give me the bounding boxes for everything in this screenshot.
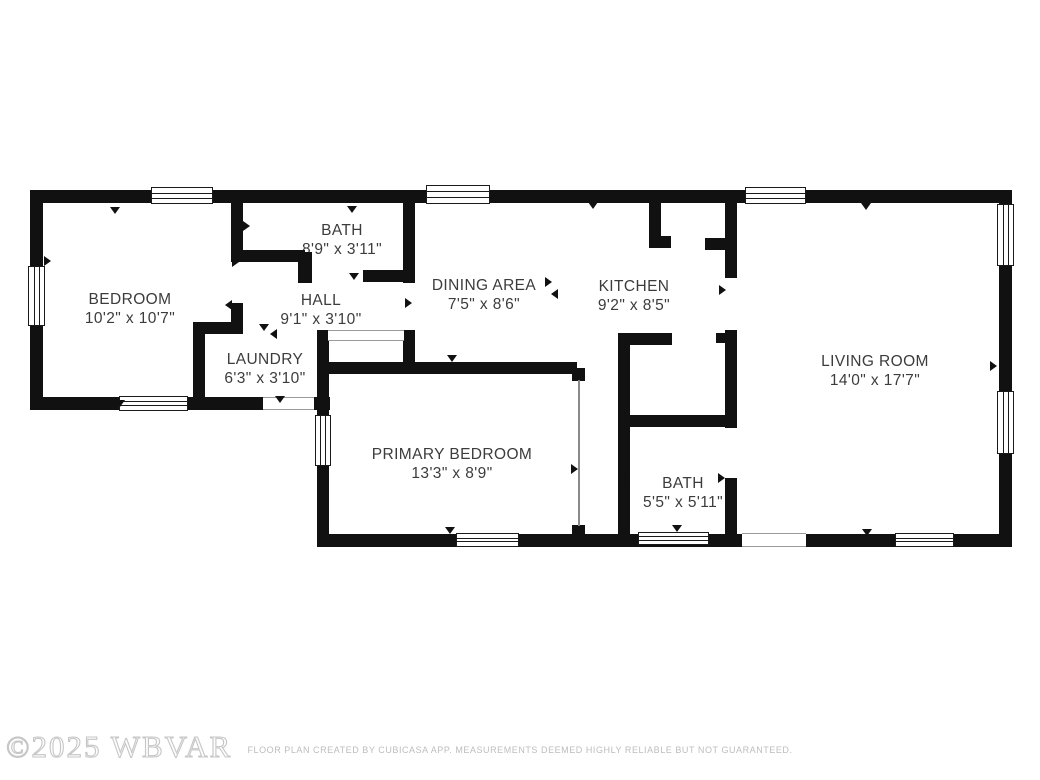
- room-dimensions: 5'5" x 5'11": [643, 493, 723, 512]
- room-dimensions: 7'5" x 8'6": [432, 295, 536, 314]
- door-arrow-icon: [861, 203, 871, 210]
- door-arrow-icon: [115, 400, 125, 407]
- room-name: DINING AREA: [432, 276, 536, 295]
- room-dimensions: 13'3" x 8'9": [372, 464, 532, 483]
- door-arrow-icon: [588, 202, 598, 209]
- room-label-kitchen: KITCHEN 9'2" x 8'5": [598, 277, 670, 315]
- window-pane: [34, 267, 40, 325]
- window-icon: [28, 266, 45, 326]
- window-icon: [119, 396, 188, 411]
- watermark-text: ©2025 WBVAR: [6, 729, 232, 765]
- wall-segment: [725, 478, 737, 547]
- room-label-bedroom: BEDROOM 10'2" x 10'7": [85, 290, 175, 328]
- wall-segment: [572, 525, 585, 538]
- wall-segment: [231, 250, 305, 262]
- window-pane: [427, 191, 489, 198]
- room-dimensions: 9'2" x 8'5": [598, 296, 670, 315]
- window-icon: [895, 533, 954, 547]
- wall-segment: [716, 333, 725, 343]
- window-icon: [151, 187, 213, 204]
- window-pane: [120, 401, 187, 406]
- thin-divider-line: [578, 380, 580, 526]
- door-arrow-icon: [551, 289, 558, 299]
- window-pane: [152, 193, 212, 199]
- room-name: BATH: [643, 474, 723, 493]
- room-name: HALL: [280, 291, 361, 310]
- door-arrow-icon: [225, 300, 232, 310]
- door-arrow-icon: [447, 355, 457, 362]
- door-arrow-icon: [719, 285, 726, 295]
- opening-icon: [328, 330, 404, 341]
- wall-segment: [649, 236, 671, 248]
- door-arrow-icon: [259, 324, 269, 331]
- wall-segment: [725, 330, 737, 428]
- door-arrow-icon: [862, 529, 872, 536]
- window-pane: [746, 193, 805, 199]
- door-arrow-icon: [243, 221, 250, 231]
- window-pane: [320, 416, 326, 465]
- floor-plan: BEDROOM 10'2" x 10'7" BATH 8'9" x 3'11" …: [0, 0, 1040, 780]
- door-arrow-icon: [110, 207, 120, 214]
- room-label-living-room: LIVING ROOM 14'0" x 17'7": [821, 352, 929, 390]
- room-name: BATH: [302, 221, 382, 240]
- wall-segment: [403, 330, 415, 365]
- door-arrow-icon: [44, 256, 51, 266]
- room-dimensions: 6'3" x 3'10": [224, 369, 305, 388]
- room-name: KITCHEN: [598, 277, 670, 296]
- window-pane: [896, 538, 953, 543]
- footer-disclaimer: FLOOR PLAN CREATED BY CUBICASA APP. MEAS…: [247, 745, 792, 755]
- door-arrow-icon: [270, 329, 277, 339]
- wall-segment: [618, 333, 630, 537]
- door-arrow-icon: [718, 473, 725, 483]
- door-arrow-icon: [990, 361, 997, 371]
- door-arrow-icon: [623, 473, 630, 483]
- window-pane: [1003, 205, 1009, 265]
- room-dimensions: 14'0" x 17'7": [821, 371, 929, 390]
- door-arrow-icon: [275, 396, 285, 403]
- room-label-hall: HALL 9'1" x 3'10": [280, 291, 361, 329]
- wall-segment: [725, 203, 737, 278]
- room-label-primary-bedroom: PRIMARY BEDROOM 13'3" x 8'9": [372, 445, 532, 483]
- room-dimensions: 10'2" x 10'7": [85, 309, 175, 328]
- wall-segment: [705, 238, 727, 250]
- door-arrow-icon: [347, 206, 357, 213]
- window-icon: [456, 533, 519, 547]
- door-arrow-icon: [445, 527, 455, 534]
- wall-segment: [403, 203, 415, 283]
- room-name: BEDROOM: [85, 290, 175, 309]
- room-label-laundry: LAUNDRY 6'3" x 3'10": [224, 350, 305, 388]
- wall-segment: [317, 362, 577, 374]
- window-icon: [745, 187, 806, 204]
- room-dimensions: 8'9" x 3'11": [302, 240, 382, 259]
- room-name: LAUNDRY: [224, 350, 305, 369]
- window-icon: [997, 204, 1014, 266]
- door-arrow-icon: [672, 416, 682, 423]
- opening-icon: [742, 533, 806, 547]
- wall-segment: [298, 252, 312, 283]
- room-label-bath-upper: BATH 8'9" x 3'11": [302, 221, 382, 259]
- window-icon: [426, 185, 490, 204]
- door-arrow-icon: [545, 277, 552, 287]
- door-arrow-icon: [672, 525, 682, 532]
- room-name: LIVING ROOM: [821, 352, 929, 371]
- door-arrow-icon: [405, 298, 412, 308]
- room-dimensions: 9'1" x 3'10": [280, 310, 361, 329]
- window-pane: [457, 538, 518, 543]
- opening-icon: [263, 397, 314, 410]
- door-arrow-icon: [232, 257, 239, 267]
- wall-segment: [363, 270, 405, 282]
- wall-segment: [193, 322, 205, 398]
- window-icon: [315, 415, 331, 466]
- window-icon: [638, 532, 709, 545]
- door-arrow-icon: [349, 273, 359, 280]
- window-icon: [997, 391, 1014, 454]
- room-label-dining-area: DINING AREA 7'5" x 8'6": [432, 276, 536, 314]
- door-arrow-icon: [571, 464, 578, 474]
- room-name: PRIMARY BEDROOM: [372, 445, 532, 464]
- window-pane: [639, 536, 708, 540]
- window-pane: [1003, 392, 1009, 453]
- room-label-bath-lower: BATH 5'5" x 5'11": [643, 474, 723, 512]
- door-arrow-icon: [729, 361, 736, 371]
